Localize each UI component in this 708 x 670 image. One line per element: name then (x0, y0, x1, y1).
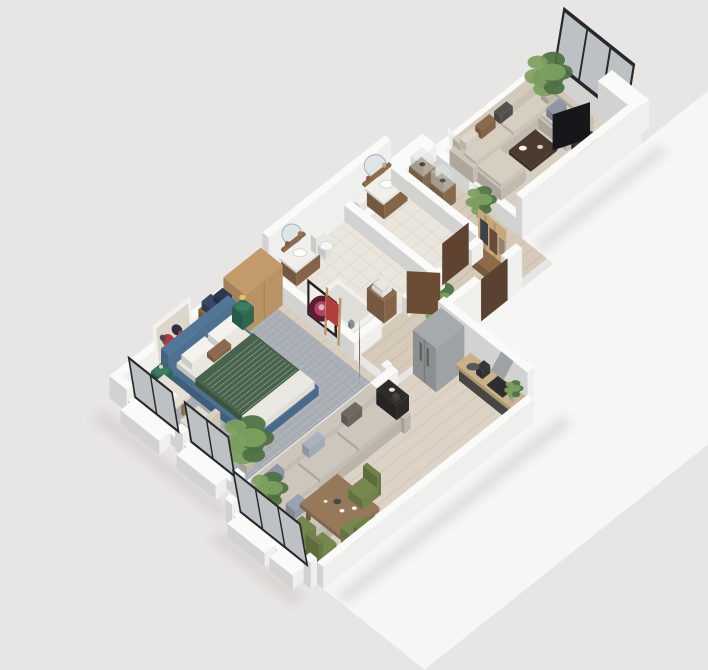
floor-plan-canvas (0, 0, 708, 670)
console-decor (389, 388, 395, 392)
wardrobe-door-seam (264, 282, 265, 319)
toilet-1-bowl (320, 241, 333, 250)
vanity-1-basin (293, 249, 307, 257)
bathroom-1-door-open (407, 271, 441, 315)
floor-plan-image (0, 0, 708, 670)
display-item-1 (419, 162, 425, 166)
display-item-2 (440, 179, 446, 183)
kitchen-sink (467, 363, 480, 371)
